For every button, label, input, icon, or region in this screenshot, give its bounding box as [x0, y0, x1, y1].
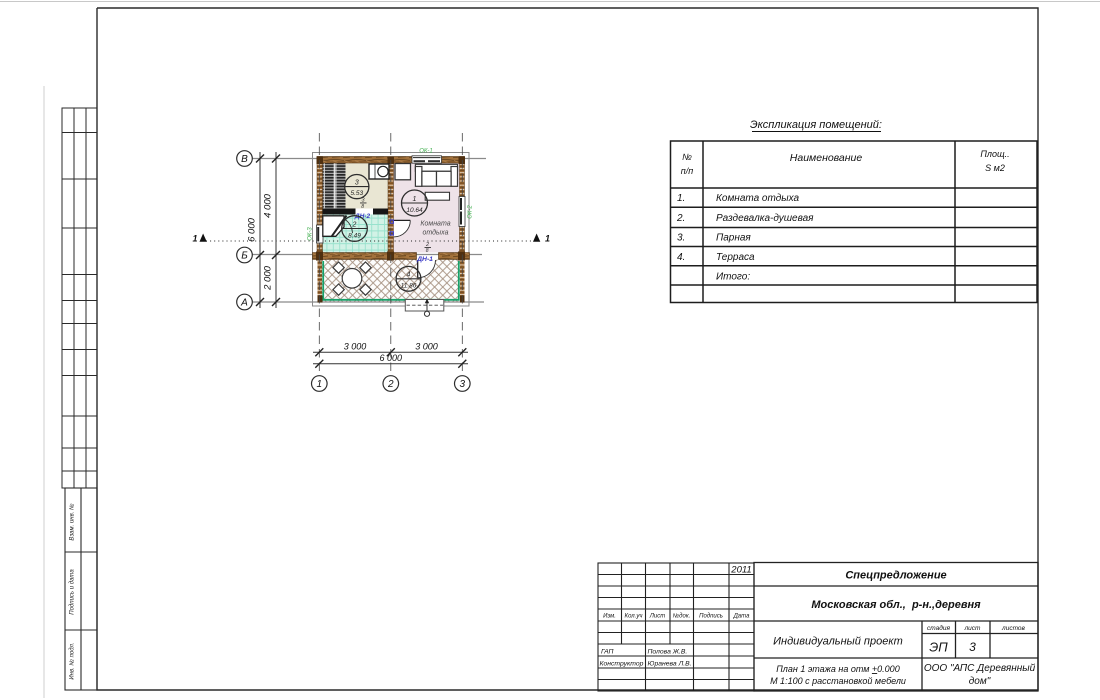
svg-text:Подпись и дата: Подпись и дата: [70, 569, 76, 615]
svg-text:Взам. инв. №: Взам. инв. №: [69, 503, 76, 541]
svg-text:Московская обл., р-н.,деревня: Московская обл., р-н.,деревня: [811, 599, 981, 611]
svg-text:листов: листов: [1001, 625, 1025, 632]
svg-text:В: В: [241, 154, 248, 165]
svg-text:п/п: п/п: [681, 166, 693, 176]
svg-text:2: 2: [352, 221, 357, 228]
svg-text:дом": дом": [969, 676, 991, 687]
svg-text:4 000: 4 000: [263, 193, 274, 217]
svg-text:4.: 4.: [677, 252, 685, 263]
svg-text:2: 2: [387, 379, 394, 390]
svg-text:Инв. № подл.: Инв. № подл.: [69, 642, 76, 679]
svg-text:отдыха: отдыха: [423, 229, 449, 237]
svg-text:Кол.уч: Кол.уч: [625, 614, 643, 620]
svg-text:Наименование: Наименование: [790, 152, 863, 164]
svg-text:8.49: 8.49: [348, 232, 361, 239]
svg-text:М 1:100 с расстановкой мебели: М 1:100 с расстановкой мебели: [770, 676, 906, 686]
svg-text:10.64: 10.64: [406, 207, 423, 214]
svg-text:8: 8: [361, 204, 364, 210]
svg-text:3 000: 3 000: [344, 342, 367, 352]
svg-text:План 1 этажа на отм +0.000: План 1 этажа на отм +0.000: [776, 664, 899, 674]
svg-text:Площ..: Площ..: [980, 149, 1009, 159]
svg-text:5.53: 5.53: [350, 190, 363, 197]
svg-text:8: 8: [426, 248, 429, 254]
svg-text:Раздевалка-душевая: Раздевалка-душевая: [716, 213, 814, 224]
svg-text:1: 1: [545, 234, 550, 244]
svg-text:3 000: 3 000: [415, 342, 438, 352]
svg-text:Подпись: Подпись: [699, 614, 723, 620]
svg-text:Комната: Комната: [420, 221, 450, 228]
svg-text:Б: Б: [241, 251, 248, 262]
svg-text:ОК-2: ОК-2: [468, 205, 474, 219]
svg-text:1: 1: [317, 379, 323, 390]
svg-text:Лист: Лист: [649, 614, 665, 620]
svg-text:Юранева Л.В.: Юранева Л.В.: [648, 661, 692, 668]
svg-text:2 000: 2 000: [263, 265, 274, 290]
svg-text:4: 4: [407, 272, 411, 279]
svg-text:Итого:: Итого:: [716, 272, 750, 283]
svg-text:Изм.: Изм.: [603, 614, 616, 620]
svg-text:лист: лист: [964, 625, 982, 632]
svg-text:Терраса: Терраса: [716, 252, 755, 263]
svg-text:Индивидуальный проект: Индивидуальный проект: [773, 636, 903, 648]
svg-text:3: 3: [460, 379, 466, 390]
svg-text:Полова Ж.В.: Полова Ж.В.: [648, 649, 688, 656]
svg-text:№: №: [682, 152, 692, 162]
svg-text:ДН-1: ДН-1: [416, 256, 433, 263]
svg-text:3: 3: [969, 640, 976, 654]
svg-text:Дата: Дата: [733, 614, 750, 620]
svg-text:1.: 1.: [677, 193, 685, 204]
svg-text:3.: 3.: [677, 233, 685, 244]
svg-text:Спецпредложение: Спецпредложение: [845, 570, 946, 582]
svg-text:3: 3: [355, 179, 359, 186]
svg-text:Конструктор: Конструктор: [600, 661, 644, 668]
svg-text:ООО "АПС Деревянный: ООО "АПС Деревянный: [924, 663, 1036, 674]
svg-text:6 000: 6 000: [380, 353, 403, 363]
svg-text:6 000: 6 000: [247, 217, 258, 241]
svg-text:1: 1: [413, 196, 417, 203]
svg-text:Экспликация помещений:: Экспликация помещений:: [750, 119, 882, 131]
svg-text:S м2: S м2: [985, 163, 1005, 173]
svg-text:№док.: №док.: [673, 613, 691, 620]
svg-text:стадия: стадия: [927, 624, 950, 632]
svg-text:ГАП: ГАП: [601, 649, 614, 656]
svg-text:ОК-1: ОК-1: [419, 149, 433, 155]
svg-text:1: 1: [192, 234, 197, 244]
svg-text:2011: 2011: [730, 565, 751, 576]
svg-text:А: А: [240, 298, 248, 309]
svg-text:ОК-3: ОК-3: [308, 227, 314, 241]
svg-text:2.: 2.: [676, 213, 685, 224]
svg-text:Парная: Парная: [716, 233, 751, 244]
svg-text:11.86: 11.86: [401, 283, 417, 290]
svg-text:ЭП: ЭП: [929, 640, 948, 655]
svg-text:Комната отдыха: Комната отдыха: [716, 193, 799, 204]
